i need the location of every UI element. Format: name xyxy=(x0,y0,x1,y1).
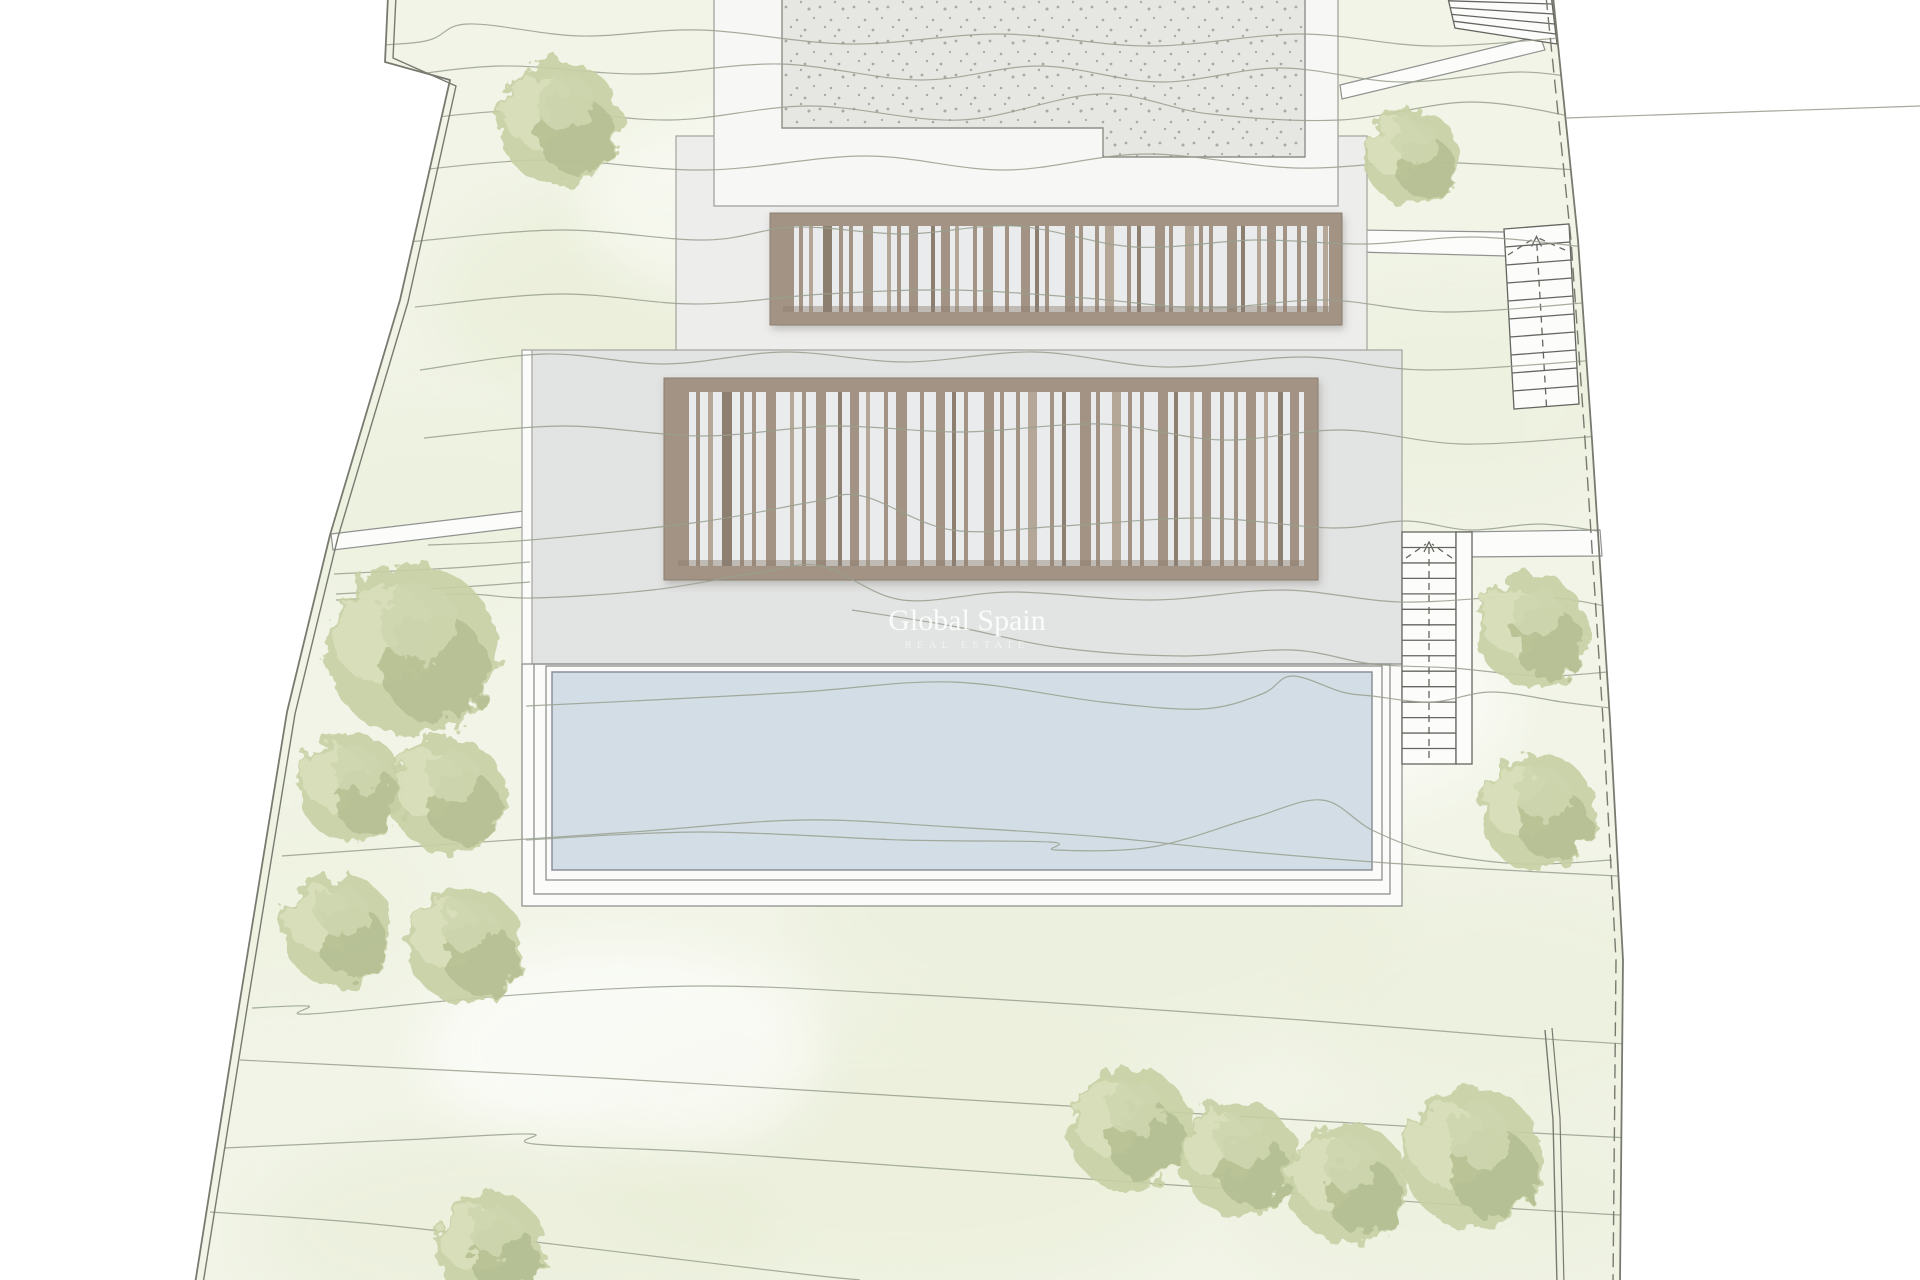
tree xyxy=(1068,1067,1192,1191)
upper-louvre-roof-slat xyxy=(1005,226,1009,312)
tree xyxy=(326,564,498,736)
upper-louvre-roof-slat xyxy=(1307,226,1317,312)
upper-louvre-roof-slat xyxy=(1155,226,1165,312)
upper-louvre-roof-slat xyxy=(1323,226,1328,312)
terrain-mottle xyxy=(1300,890,1700,1110)
lower-louvre-roof-slat xyxy=(1050,392,1054,566)
upper-louvre-roof-slat xyxy=(1105,226,1114,312)
upper-louvre-roof-slat xyxy=(823,226,832,312)
lower-louvre-roof-slat xyxy=(1174,392,1178,566)
lower-louvre-roof-slat xyxy=(1158,392,1168,566)
tree xyxy=(1364,109,1460,205)
stairs-pool-path xyxy=(1456,530,1602,557)
tree xyxy=(1180,1100,1296,1216)
lower-louvre-roof-slat xyxy=(790,392,794,566)
upper-louvre-roof-slat xyxy=(1267,226,1276,312)
lower-louvre-roof-slat xyxy=(964,392,968,566)
upper-louvre-roof-slat xyxy=(955,226,959,312)
lower-louvre-roof-slat xyxy=(708,392,713,566)
lower-louvre-roof-slat xyxy=(1264,392,1268,566)
tree-top xyxy=(1325,1137,1379,1191)
site-plan-drawing xyxy=(0,0,1920,1280)
tree xyxy=(298,734,406,842)
lower-louvre-roof-slat xyxy=(884,392,888,566)
tree-top xyxy=(444,900,496,952)
upper-louvre-roof-slat xyxy=(1209,226,1213,312)
upper-louvre-roof-shadow-line xyxy=(783,306,1329,312)
lower-louvre-roof-slat xyxy=(1080,392,1091,566)
lower-louvre-roof-slat xyxy=(722,392,732,566)
tree-top xyxy=(470,1205,520,1255)
tree-top xyxy=(1517,767,1569,819)
tree xyxy=(407,887,523,1003)
upper-louvre-roof-slat xyxy=(887,226,891,312)
tree xyxy=(282,874,394,986)
tree xyxy=(1403,1088,1543,1228)
lower-louvre-roof-slat xyxy=(1128,392,1132,566)
tree-top xyxy=(1217,1113,1269,1165)
upper-louvre-roof-slat xyxy=(1045,226,1049,312)
upper-louvre-roof-slat xyxy=(973,226,977,312)
lower-louvre-roof-slat xyxy=(1190,392,1194,566)
upper-louvre-roof-slat xyxy=(1127,226,1131,312)
lower-louvre-roof-slat xyxy=(936,392,945,566)
tree xyxy=(1480,754,1596,870)
lower-louvre-roof-slat xyxy=(1140,392,1144,566)
upper-louvre-roof-slat xyxy=(799,226,803,312)
upper-louvre-roof-slat xyxy=(1241,226,1245,312)
lower-louvre-roof-slat xyxy=(740,392,744,566)
tree-top xyxy=(1511,587,1561,637)
upper-louvre-roof-slat xyxy=(783,226,794,312)
upper-louvre-roof-slat xyxy=(897,226,901,312)
upper-louvre-roof-slat xyxy=(1035,226,1039,312)
lower-louvre-roof-slat xyxy=(1096,392,1100,566)
tree xyxy=(497,60,621,184)
lower-louvre-roof-slat xyxy=(850,392,859,566)
tree-top xyxy=(1394,120,1437,163)
lower-louvre-roof-slat xyxy=(1028,392,1037,566)
upper-louvre-roof-slat xyxy=(1079,226,1083,312)
upper-louvre-roof-slat xyxy=(1257,226,1261,312)
lower-louvre-roof-slat xyxy=(920,392,924,566)
stairs-pool-rail xyxy=(1456,532,1472,764)
lower-louvre-roof-shadow-line xyxy=(678,560,1304,566)
lower-louvre-roof-slat xyxy=(1290,392,1299,566)
tree-top xyxy=(380,584,457,661)
lower-louvre-roof-slat xyxy=(896,392,907,566)
lower-louvre-roof-slat xyxy=(766,392,776,566)
upper-louvre-roof-slat xyxy=(931,226,935,312)
lower-louvre-roof-slat xyxy=(1112,392,1121,566)
lower-louvre-roof-slat xyxy=(1000,392,1004,566)
upper-louvre-roof-slat xyxy=(1137,226,1141,312)
upper-louvre-roof-slat xyxy=(1185,226,1194,312)
upper-louvre-roof-slat xyxy=(1021,226,1030,312)
upper-louvre-roof-slat xyxy=(1297,226,1301,312)
tree xyxy=(1287,1123,1407,1243)
stairs-pool-side xyxy=(1402,532,1472,764)
tree xyxy=(390,737,506,853)
upper-louvre-roof-slat xyxy=(1199,226,1203,312)
lower-louvre-roof-slat xyxy=(984,392,994,566)
terrace-side-band xyxy=(522,350,532,666)
lower-louvre-roof-slat xyxy=(678,392,689,566)
lower-louvre-roof-slat xyxy=(752,392,756,566)
lower-louvre-roof-slat xyxy=(1278,392,1283,566)
tree-top xyxy=(536,74,592,130)
stairs-upper-right xyxy=(1504,224,1579,409)
lower-louvre-roof-slat xyxy=(1062,392,1066,566)
lower-louvre-roof-slat xyxy=(1202,392,1211,566)
lower-louvre-roof-slat xyxy=(838,392,842,566)
terrain-mottle xyxy=(120,810,440,990)
lower-louvre-roof-slat xyxy=(1016,392,1020,566)
upper-louvre-roof-slat xyxy=(809,226,813,312)
upper-louvre-roof-slat xyxy=(941,226,950,312)
tree xyxy=(1476,574,1588,686)
upper-louvre-roof-slat xyxy=(863,226,873,312)
lower-louvre-roof-slat xyxy=(1234,392,1238,566)
upper-louvre-roof-slat xyxy=(909,226,918,312)
lower-louvre-roof-slat xyxy=(816,392,826,566)
tree-top xyxy=(317,887,367,937)
upper-louvre-roof-slat xyxy=(839,226,843,312)
lower-louvre-roof-slat xyxy=(866,392,870,566)
lower-louvre-roof-slat xyxy=(1246,392,1256,566)
upper-louvre-roof xyxy=(770,213,1342,325)
lower-louvre-roof-slat xyxy=(1220,392,1224,566)
upper-louvre-roof-slat xyxy=(1065,226,1075,312)
site-plan-page: Global Spain REAL ESTATE xyxy=(0,0,1920,1280)
lower-louvre-roof-slat xyxy=(696,392,700,566)
lower-louvre-roof-slat xyxy=(802,392,806,566)
upper-louvre-roof-slat xyxy=(849,226,853,312)
lower-louvre-roof-slat xyxy=(952,392,956,566)
tree-top xyxy=(1107,1081,1163,1137)
lower-louvre-roof xyxy=(664,378,1318,580)
road-edge-line xyxy=(1566,106,1920,118)
upper-louvre-roof-slat xyxy=(1169,226,1173,312)
tree-top xyxy=(332,746,381,795)
tree-top xyxy=(1447,1104,1510,1167)
upper-louvre-roof-slat xyxy=(983,226,993,312)
upper-louvre-roof-slat xyxy=(1227,226,1237,312)
upper-louvre-roof-slat xyxy=(1283,226,1287,312)
tree-top xyxy=(427,750,479,802)
